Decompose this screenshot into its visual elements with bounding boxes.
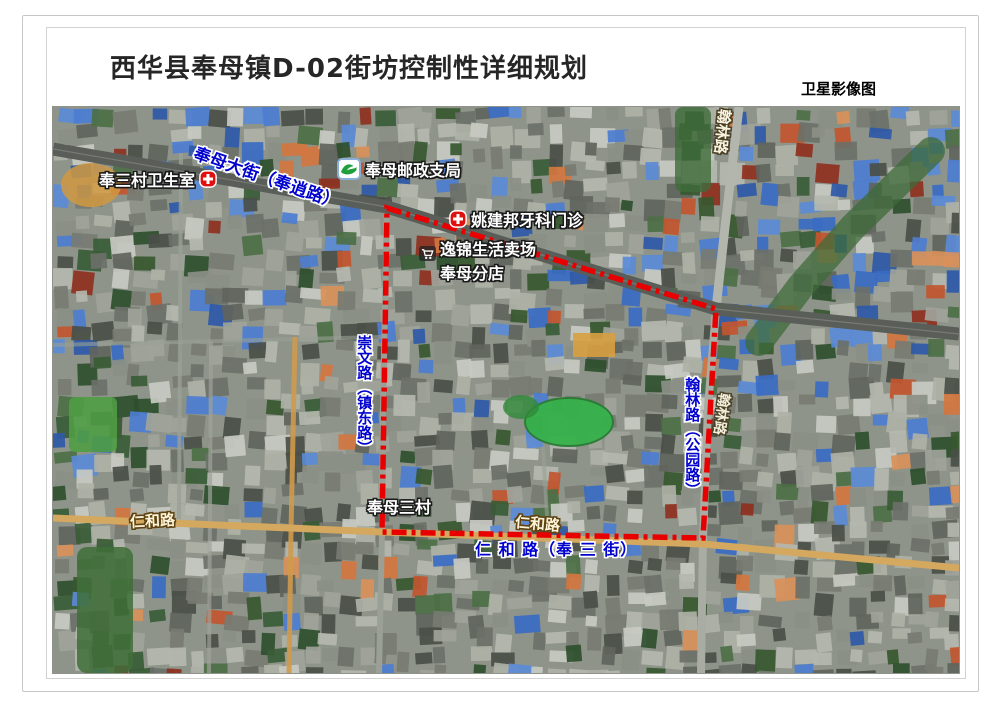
page-title: 西华县奉母镇D-02街坊控制性详细规划 <box>110 48 588 85</box>
road-label-hanlin-top: 翰林路 <box>711 108 733 155</box>
poi-post-office: 奉母邮政支局 <box>337 158 461 184</box>
post-office-icon <box>337 158 361 184</box>
poi-market-label-line2: 奉母分店 <box>440 262 536 286</box>
road-label-renhe-left: 仁和路 <box>130 512 176 532</box>
satellite-map: 奉母大街（奉逍路） 奉三村卫生室 奉母邮政支局 姚建邦牙科门诊 逸锦生活卖场 奉… <box>52 106 960 674</box>
road-label-hanlin-park: 翰林路（公园路） <box>683 377 700 497</box>
poi-dental-clinic: 姚建邦牙科门诊 <box>449 210 583 232</box>
poi-village-label: 奉母三村 <box>367 499 431 517</box>
road-label-renhe-blue: 仁 和 路（奉 三 街） <box>475 541 637 559</box>
poi-clinic: 奉三村卫生室 <box>99 170 217 192</box>
poi-dental-clinic-label: 姚建邦牙科门诊 <box>471 212 583 230</box>
poi-post-office-label: 奉母邮政支局 <box>365 162 461 180</box>
map-type-label: 卫星影像图 <box>801 78 876 99</box>
shopping-cart-icon <box>419 246 436 265</box>
road-label-chongwen: 崇文路（镇东路） <box>355 335 372 455</box>
poi-market-label-line1: 逸锦生活卖场 <box>440 238 536 262</box>
poi-clinic-label: 奉三村卫生室 <box>99 172 195 190</box>
hospital-cross-icon <box>199 170 217 192</box>
dental-cross-icon <box>449 210 467 232</box>
poi-market: 逸锦生活卖场 奉母分店 <box>419 238 536 286</box>
